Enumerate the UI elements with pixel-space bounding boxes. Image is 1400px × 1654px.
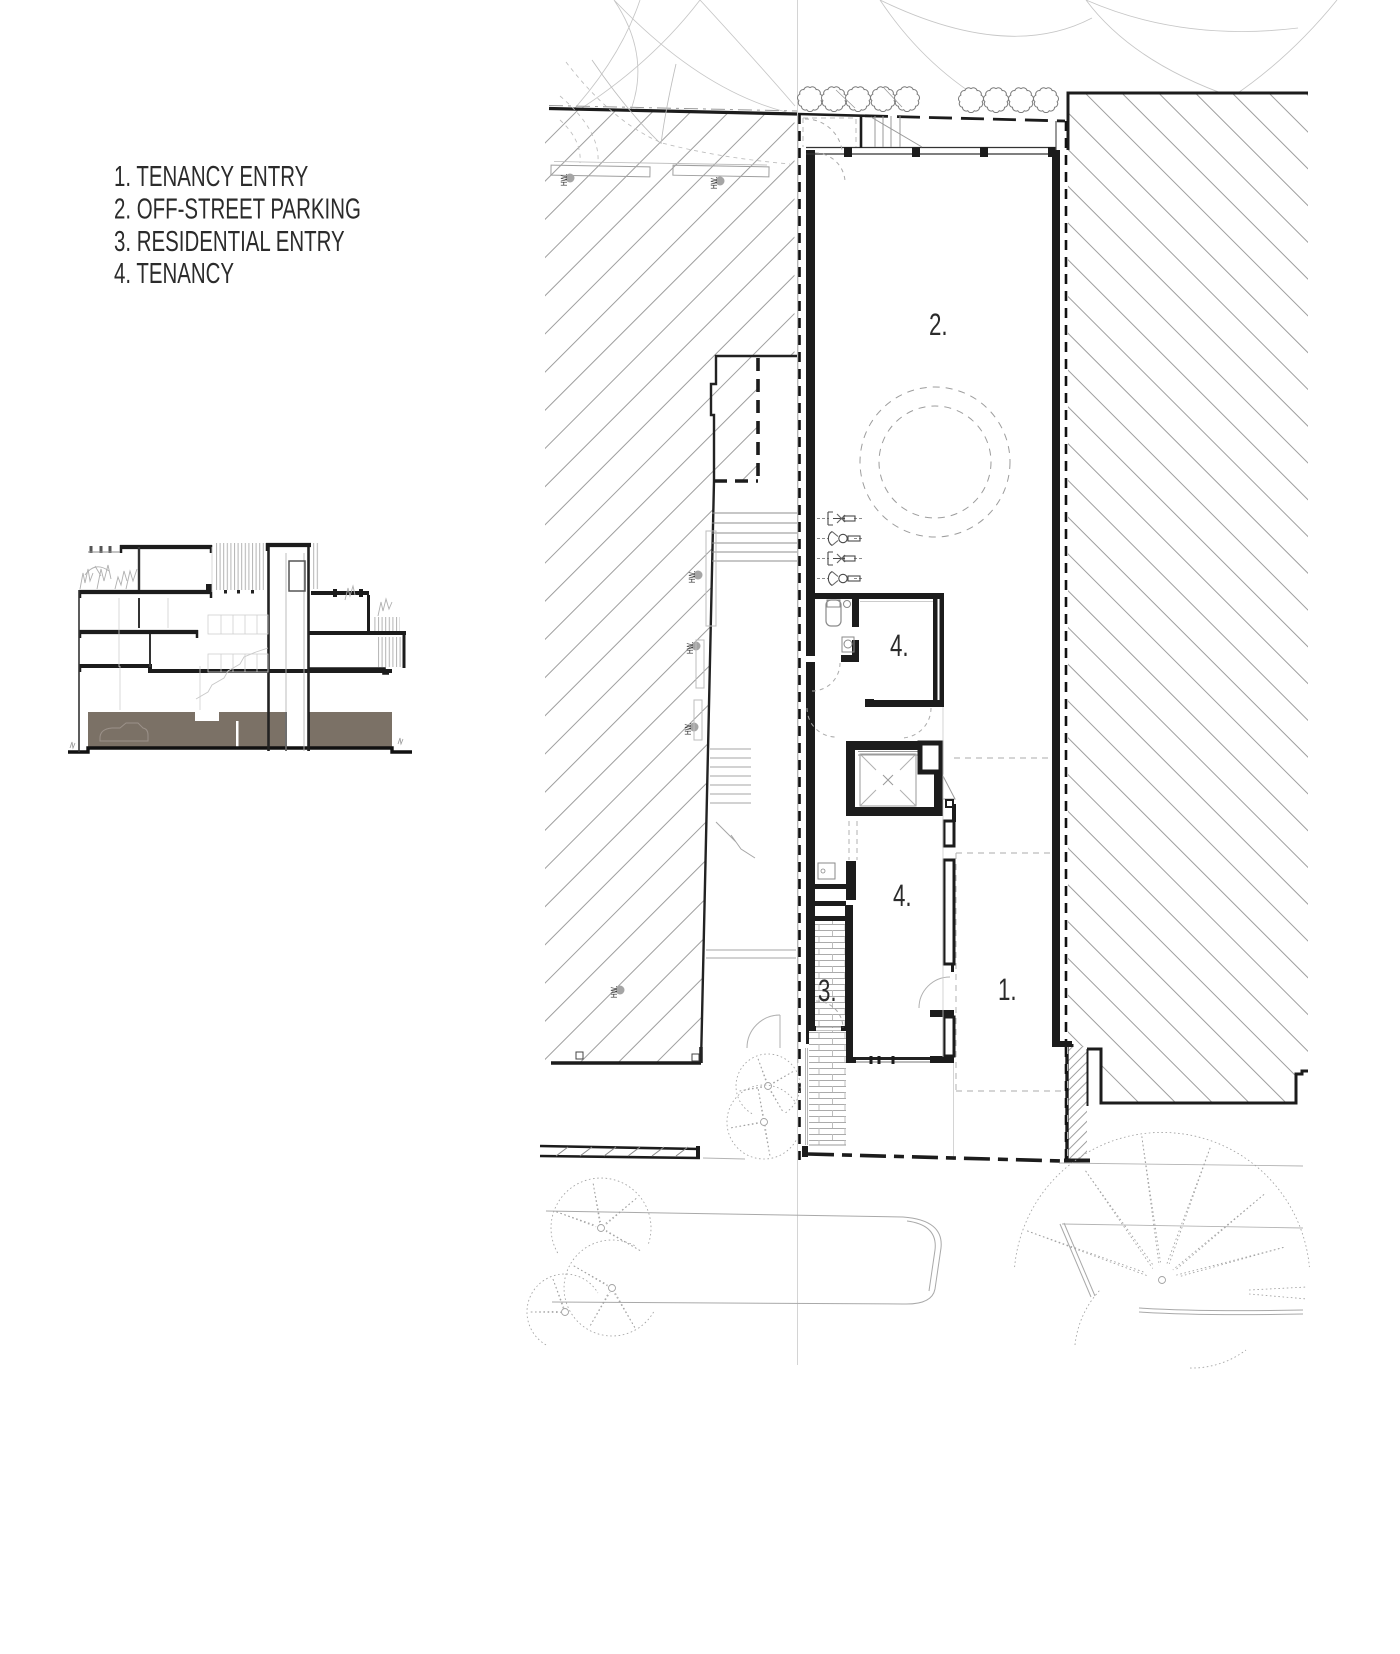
svg-text:HW.: HW. [709,177,719,189]
svg-text:4.: 4. [890,628,909,663]
svg-text:3. RESIDENTIAL ENTRY: 3. RESIDENTIAL ENTRY [114,226,345,258]
svg-text:1. TENANCY ENTRY: 1. TENANCY ENTRY [114,161,308,193]
svg-text:3.: 3. [818,973,837,1008]
svg-text:4.: 4. [893,878,912,913]
svg-text:HW.: HW. [559,174,569,186]
svg-text:2.: 2. [929,307,948,342]
svg-text:HW.: HW. [685,642,695,654]
svg-text:HW.: HW. [609,986,619,998]
svg-text:4. TENANCY: 4. TENANCY [114,258,234,290]
svg-text:HW.: HW. [687,571,697,583]
svg-text:HW.: HW. [683,723,693,735]
svg-text:1.: 1. [998,972,1017,1007]
svg-text:2. OFF-STREET PARKING: 2. OFF-STREET PARKING [114,193,361,225]
